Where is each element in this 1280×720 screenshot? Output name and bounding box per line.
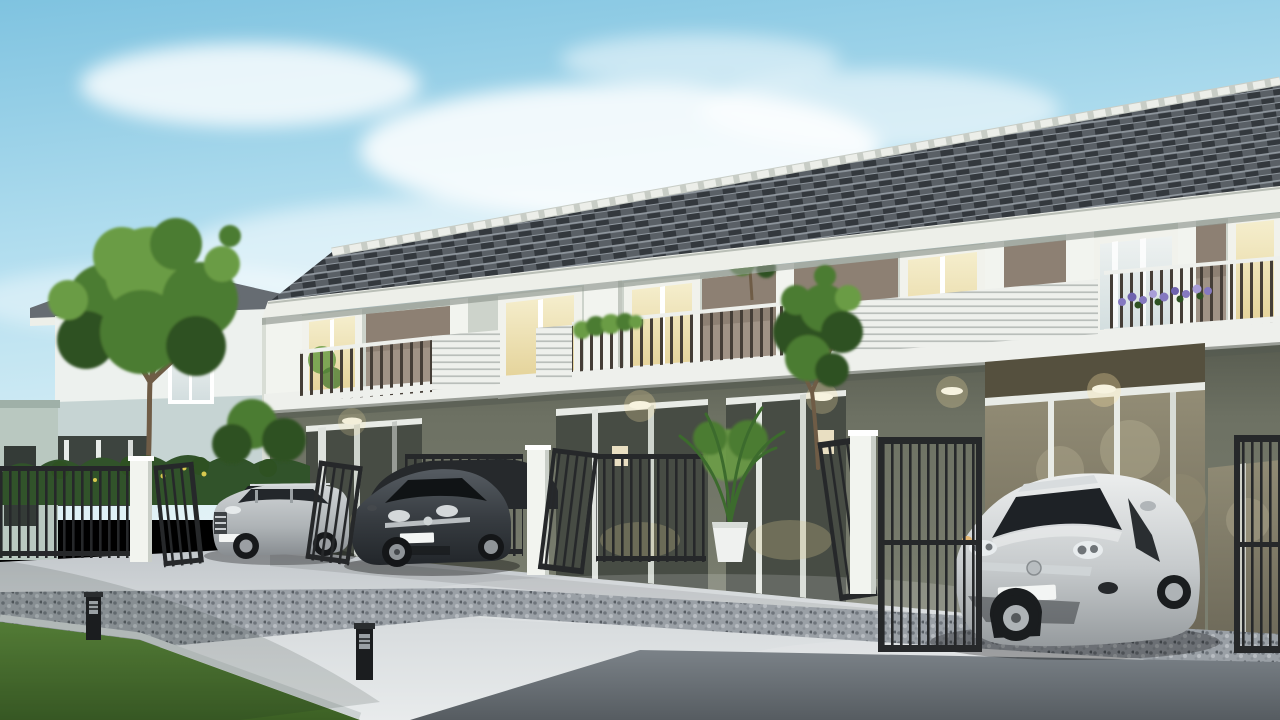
bollard-light-2 [354, 623, 375, 680]
headlight [436, 505, 458, 517]
bollard-light-1 [84, 592, 103, 640]
headlight [388, 510, 410, 522]
balcony-slat-panel-1 [432, 330, 500, 390]
suv-headlight [225, 506, 241, 514]
gate-pillar-a [128, 456, 154, 562]
fence-left [0, 466, 136, 558]
fence-center-b [596, 454, 706, 562]
ceiling-light [1087, 373, 1121, 407]
far-right-gate [1234, 435, 1280, 653]
tall-gate-right [878, 437, 982, 652]
ceiling-light [624, 390, 656, 422]
ceiling-light [936, 376, 968, 408]
side-mirror [1140, 501, 1156, 511]
scene [0, 0, 1280, 720]
ceiling-light [338, 408, 366, 436]
gate-pillar-c [848, 430, 878, 594]
emblem [1027, 561, 1041, 575]
balcony-slat-panel-2 [536, 325, 572, 382]
townhouse-render-image [0, 0, 1280, 720]
